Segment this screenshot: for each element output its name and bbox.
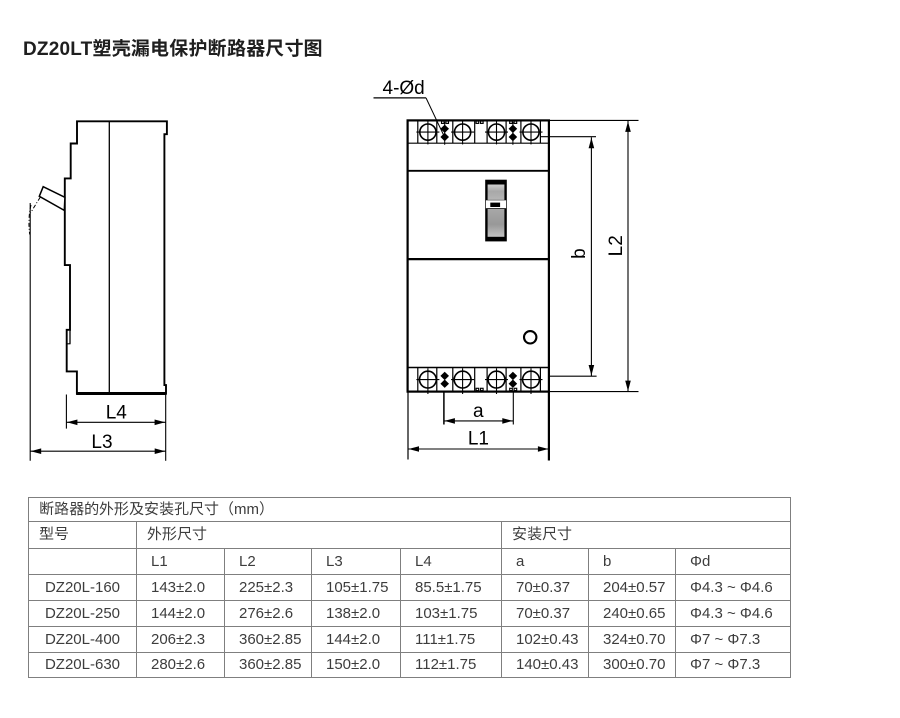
svg-text:b: b: [569, 248, 590, 259]
svg-text:L4: L4: [106, 403, 128, 424]
svg-text:4-Ød: 4-Ød: [383, 78, 425, 99]
svg-text:L2: L2: [606, 235, 627, 256]
svg-text:L1: L1: [468, 428, 489, 449]
svg-text:L3: L3: [91, 432, 112, 453]
svg-text:a: a: [473, 401, 484, 422]
